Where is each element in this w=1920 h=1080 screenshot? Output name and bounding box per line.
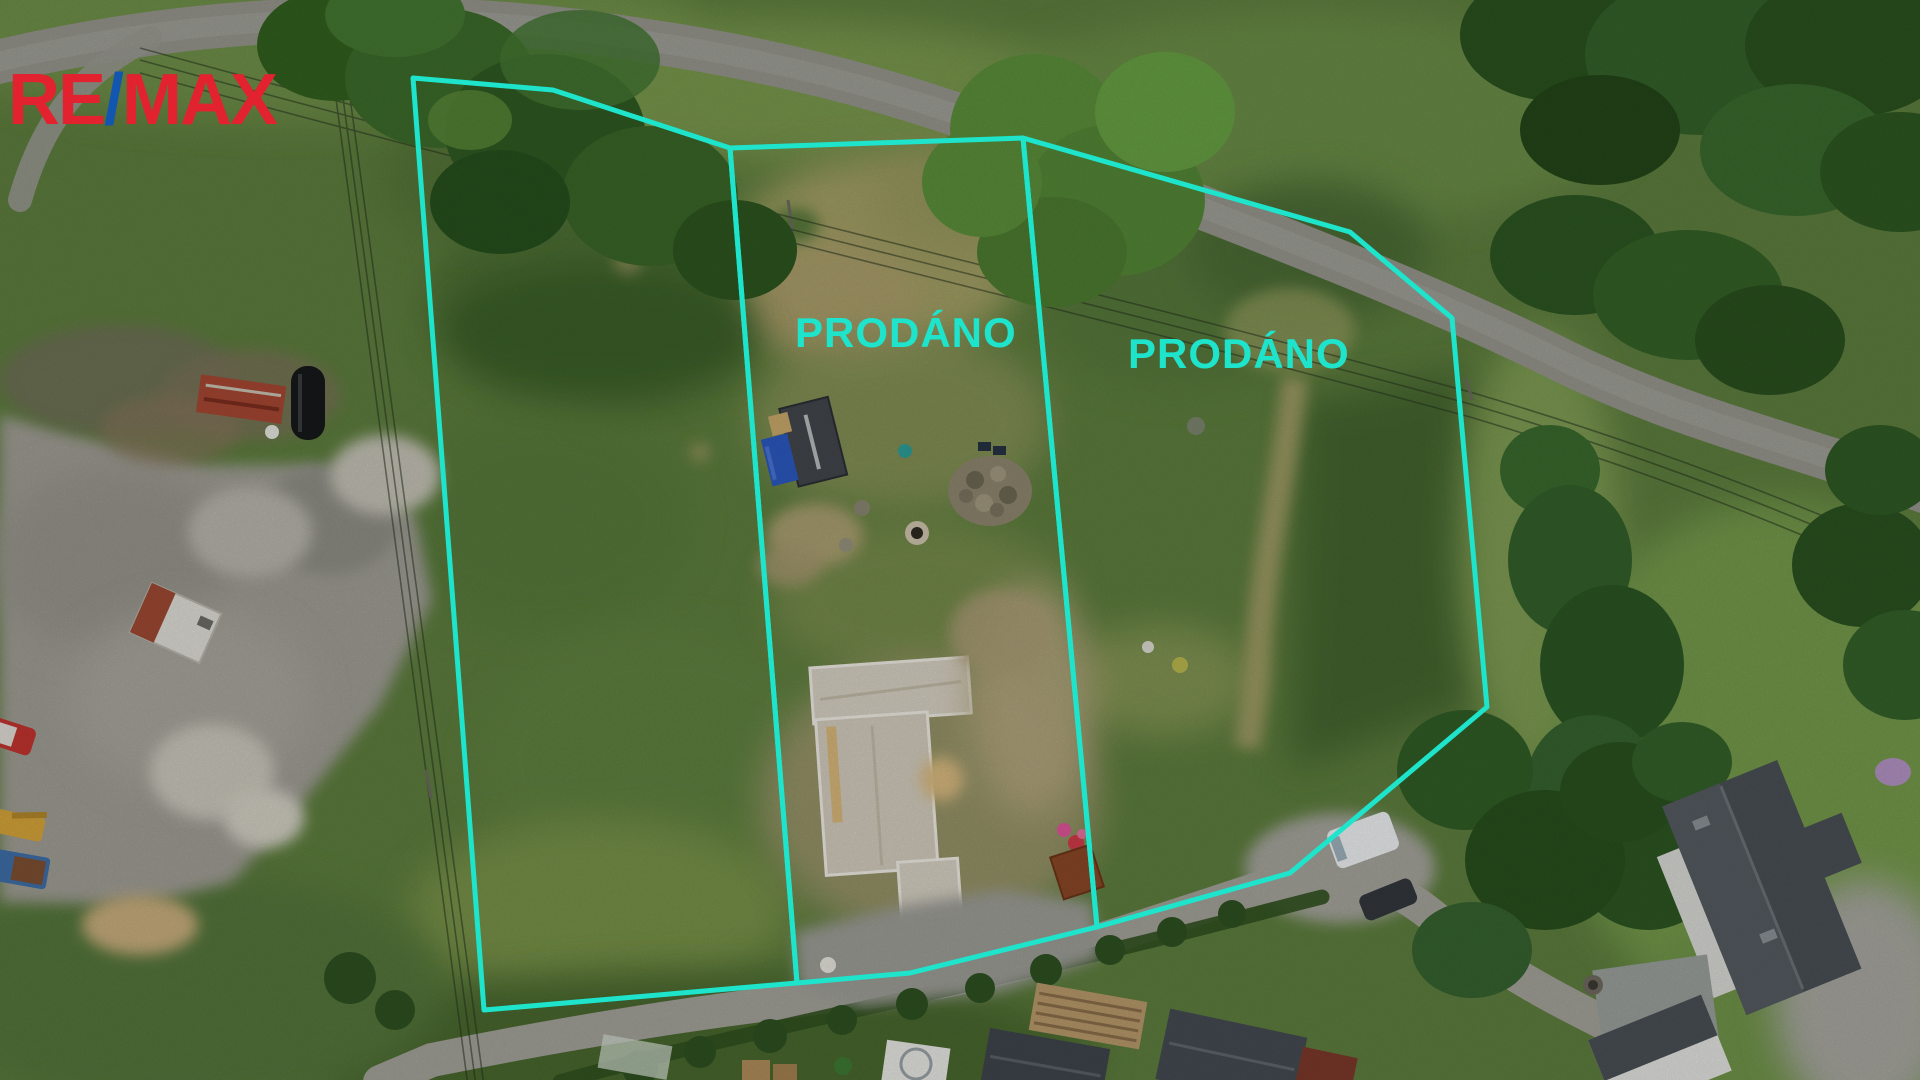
remax-logo-slash: / [104, 60, 122, 140]
remax-logo: RE/MAX [8, 64, 276, 136]
sold-label-right-plot: PRODÁNO [1128, 333, 1350, 375]
remax-logo-re: RE [8, 60, 104, 140]
sold-label-middle-plot: PRODÁNO [795, 312, 1017, 354]
photo-grain [0, 0, 1920, 1080]
aerial-photo [0, 0, 1920, 1080]
remax-logo-max: MAX [122, 60, 276, 140]
